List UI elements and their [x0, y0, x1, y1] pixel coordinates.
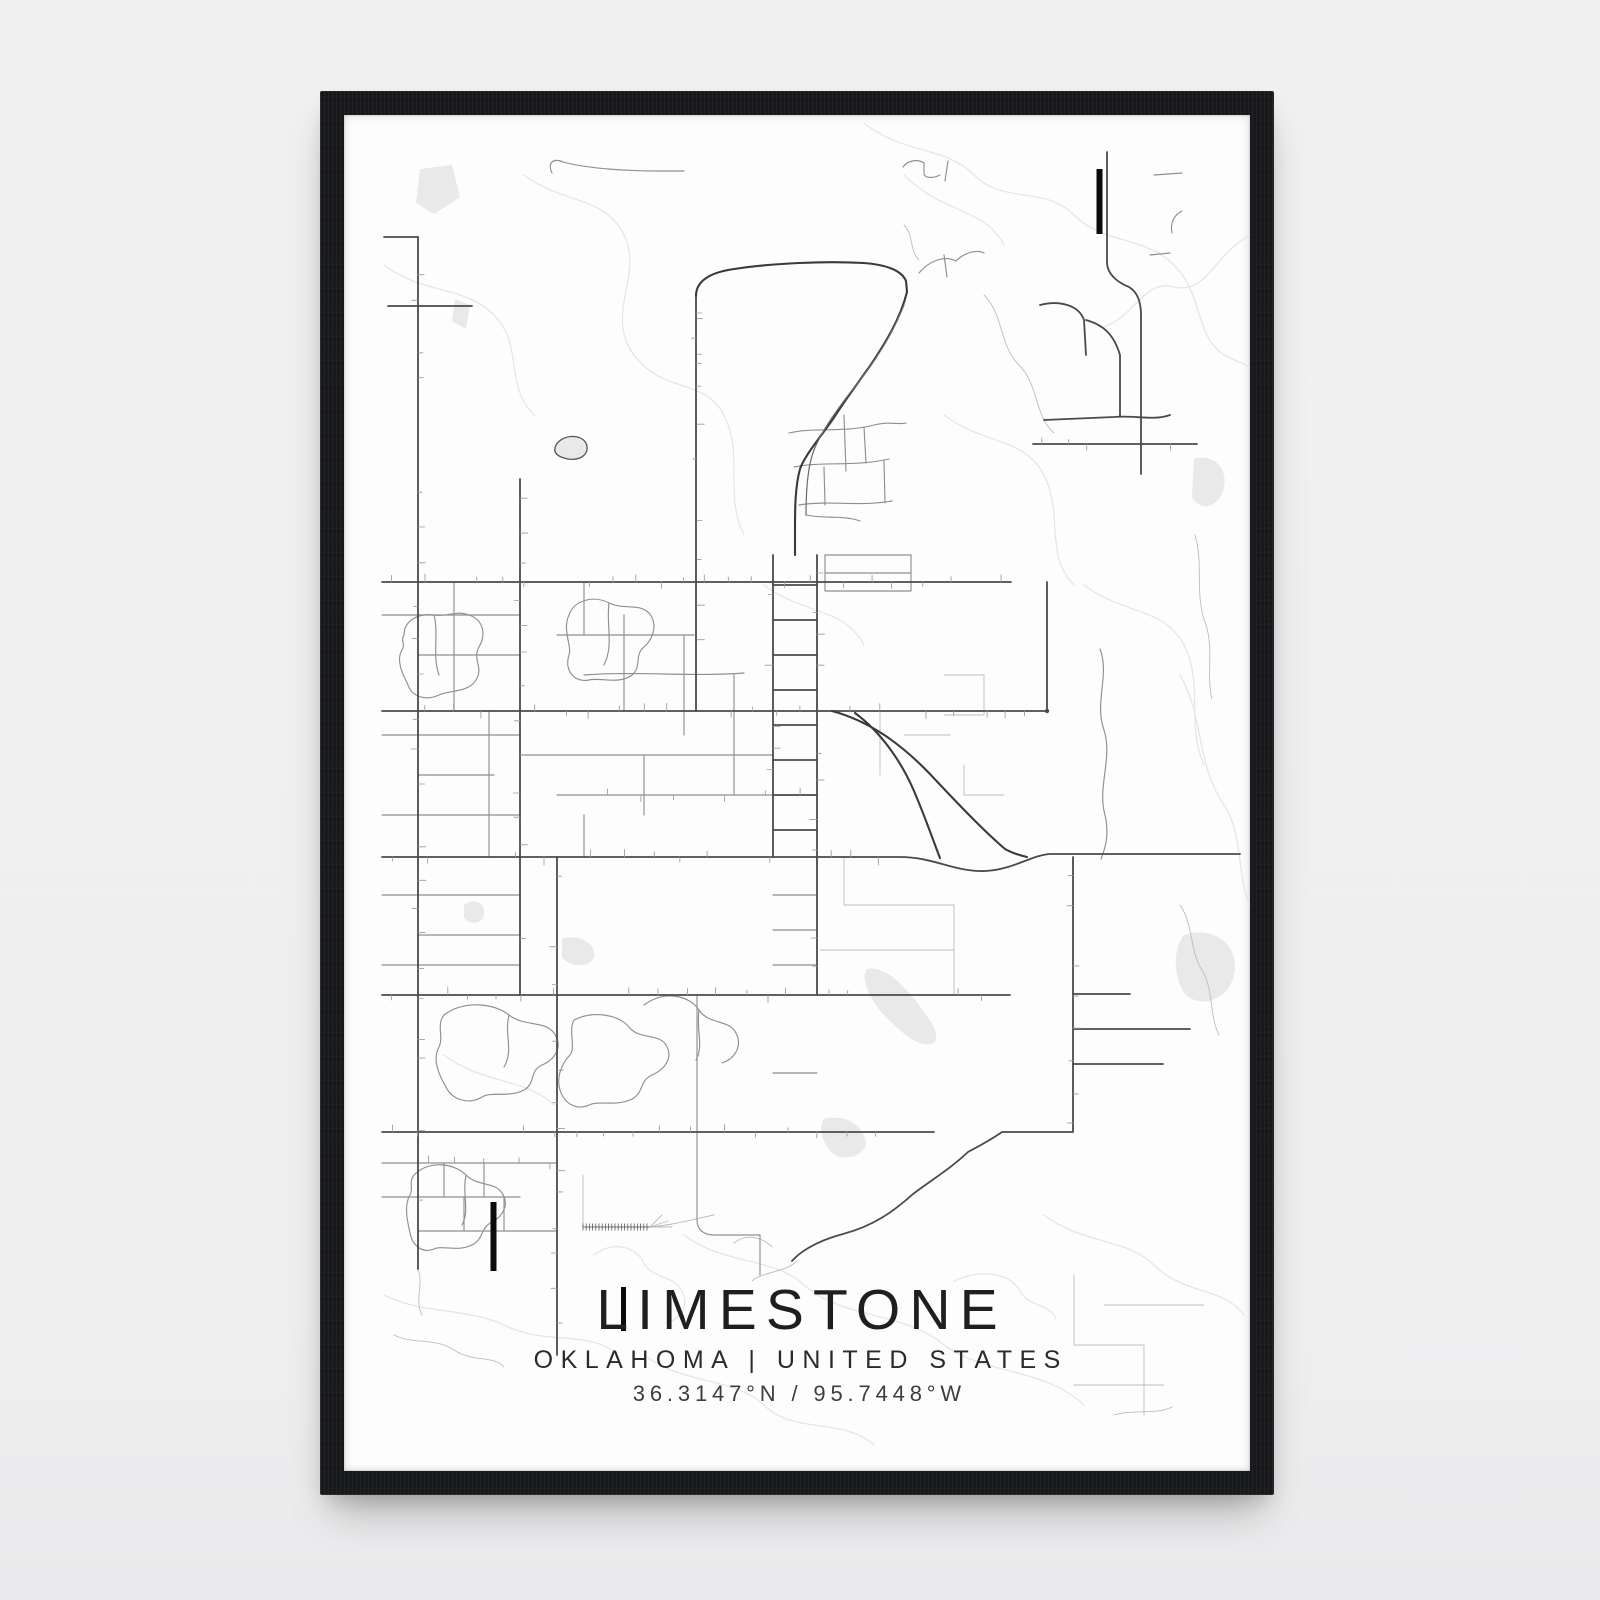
roads-mid [382, 615, 520, 965]
roads-mid [382, 160, 1182, 1275]
roads-mid [504, 1015, 509, 1067]
roads-mid [1100, 649, 1107, 859]
roads-mid [945, 161, 948, 181]
roads-minor [394, 225, 1219, 1415]
contour-lines [524, 175, 744, 535]
roads-major [1086, 320, 1120, 417]
roads-mid [773, 895, 817, 1073]
contour-lines [1084, 585, 1204, 765]
roads-major [1044, 415, 1170, 420]
driveway-ticks [392, 275, 1171, 1323]
water-areas [821, 1117, 866, 1157]
roads-mid [454, 582, 489, 857]
contour-lines [684, 1235, 1084, 1405]
roads-mid [956, 251, 984, 261]
roads-minor [904, 225, 919, 260]
roads-minor [964, 765, 1004, 795]
roads-mid [604, 603, 609, 665]
roads-mid [1171, 211, 1182, 233]
water-areas [1176, 932, 1235, 1001]
contour-lines [944, 415, 1074, 585]
water-areas [416, 165, 460, 214]
roads-mid [644, 996, 738, 1063]
water-areas [865, 968, 937, 1044]
runway-marker-north [1097, 169, 1103, 234]
runway-marker-small [621, 1287, 626, 1331]
contour-lines [644, 1355, 874, 1445]
roads-minor [944, 675, 984, 715]
roads-mid [794, 459, 889, 467]
roads-major [773, 585, 817, 830]
roads-minor [1074, 1275, 1144, 1345]
roads-mid [434, 615, 439, 675]
roads-mid [559, 1015, 669, 1107]
roads-minor [984, 295, 1054, 433]
loop-and-highway [806, 305, 904, 515]
roads-major [382, 152, 1240, 1355]
railway-segment [583, 1224, 647, 1231]
roads-mid [1154, 173, 1182, 175]
roads-mid [436, 1005, 558, 1101]
roads-major [382, 854, 1240, 871]
roads-minor [394, 1335, 504, 1367]
runway-marker-south [491, 1202, 497, 1271]
roads-major [1040, 303, 1086, 355]
loop-and-highway [696, 262, 1027, 858]
roads-mid [806, 515, 860, 521]
contour-lines [594, 1247, 685, 1323]
contour-lines [384, 265, 534, 415]
roads-mid [407, 1165, 506, 1251]
loop-and-highway [832, 711, 1027, 857]
wall-background: LIMESTONE OKLAHOMA | UNITED STATES 36.31… [0, 0, 1600, 1600]
contour-lines [764, 585, 864, 645]
roads-major [792, 857, 1073, 1261]
roads-mid [697, 995, 760, 1275]
street-map [344, 115, 1250, 1471]
roads-minor [1114, 1407, 1172, 1415]
pond [555, 436, 587, 459]
roads-mid [566, 599, 653, 680]
water-areas [1192, 458, 1225, 507]
roads-mid [382, 1163, 557, 1231]
water-areas [562, 937, 594, 965]
loop-and-highway [696, 262, 907, 296]
water-areas [464, 901, 484, 922]
roads-minor [844, 857, 954, 905]
roads-mid [550, 160, 684, 173]
roads-minor [734, 1237, 772, 1247]
roads-minor [1195, 535, 1212, 699]
roads-minor [650, 1215, 672, 1227]
roads-mid [903, 161, 940, 178]
roads-mid [789, 423, 906, 433]
poster-paper: LIMESTONE OKLAHOMA | UNITED STATES 36.31… [344, 115, 1250, 1471]
roads-major [1107, 152, 1141, 474]
contour-lines [444, 1055, 554, 1105]
roads-mid [825, 555, 911, 591]
contour-lines [1104, 235, 1250, 327]
roads-mid [919, 259, 956, 273]
water-areas [416, 165, 1235, 1157]
roads-minor [418, 1269, 422, 1315]
water-areas [452, 299, 470, 329]
roads-mid [799, 501, 892, 505]
contour-lines [1180, 675, 1250, 905]
contour-lines [864, 123, 1250, 367]
poster-frame: LIMESTONE OKLAHOMA | UNITED STATES 36.31… [320, 91, 1274, 1495]
contour-lines [954, 1274, 1056, 1319]
